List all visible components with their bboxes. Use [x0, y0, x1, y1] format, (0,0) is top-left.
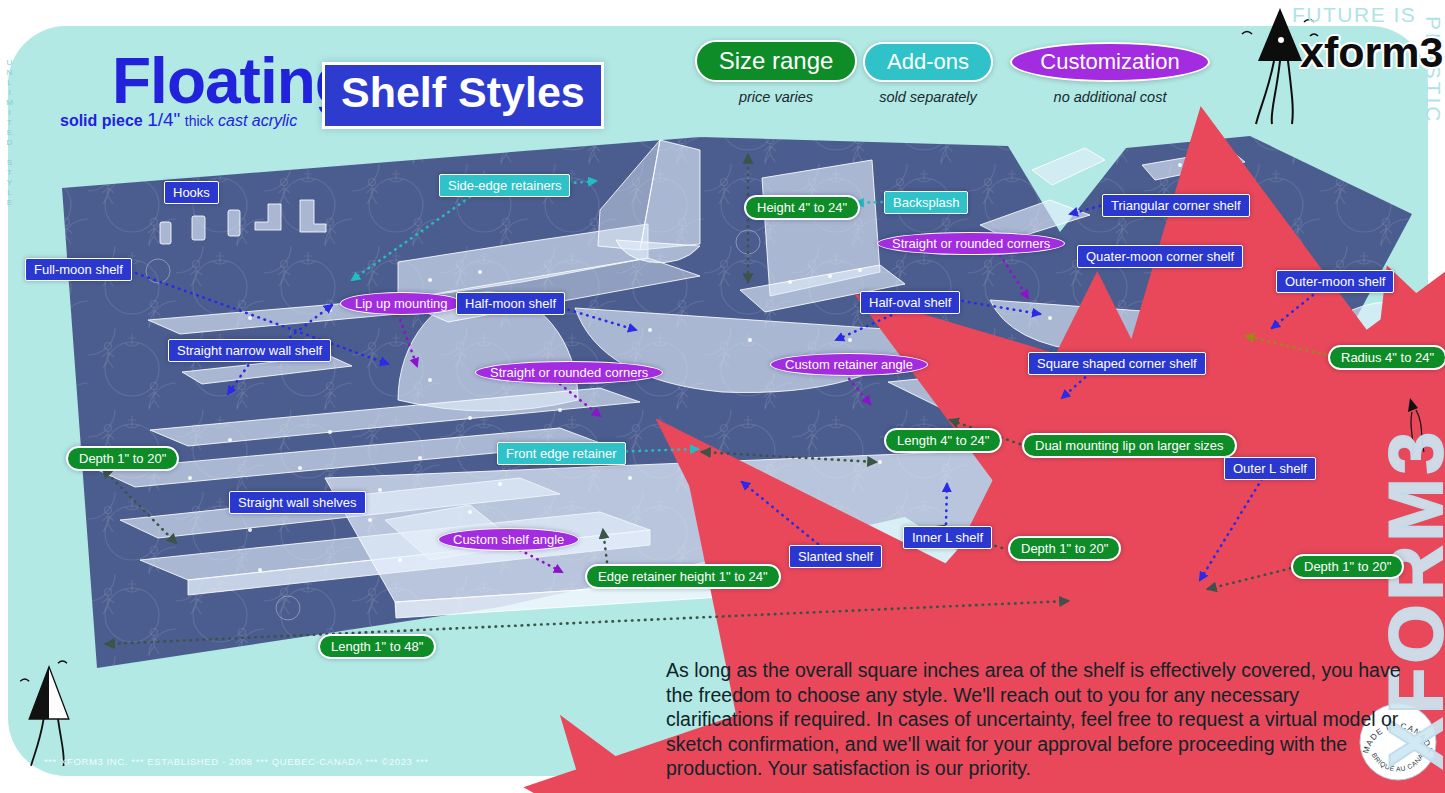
label-hooks: Hooks	[164, 181, 219, 204]
subtitle-material: cast acrylic	[218, 112, 297, 129]
label-side-edge-retainers: Side-edge retainers	[439, 174, 570, 197]
label-depth-right: Depth 1" to 20"	[1291, 554, 1404, 579]
label-half-oval-shelf: Half-oval shelf	[860, 291, 960, 314]
label-dual-mounting-lip: Dual mounting lip on larger sizes	[1022, 433, 1237, 458]
label-triangular-corner-shelf: Triangular corner shelf	[1102, 194, 1250, 217]
label-length-4-24: Length 4" to 24"	[884, 428, 1002, 453]
label-straight-or-rounded-corners-mid: Straight or rounded corners	[475, 361, 663, 384]
subtitle: solid piece 1/4" thick cast acrylic	[60, 109, 297, 131]
legend-size-range: Size range price varies	[700, 40, 852, 105]
subtitle-solid-piece: solid piece	[60, 112, 143, 129]
label-full-moon-shelf: Full-moon shelf	[25, 258, 132, 281]
xform3-logo: xform3	[1300, 28, 1443, 77]
label-edge-retainer-height: Edge retainer height 1" to 24"	[585, 564, 781, 589]
label-square-shaped-corner-shelf: Square shaped corner shelf	[1028, 352, 1206, 375]
customization-caption: no additional cost	[1054, 89, 1167, 105]
footer-fine-print: *** XFORM3 INC. *** ESTABLISHED - 2008 *…	[44, 756, 429, 767]
title-shelf-styles: Shelf Styles	[322, 62, 604, 129]
footer-paragraph: As long as the overall square inches are…	[666, 658, 1410, 781]
label-straight-narrow-wall-shelf: Straight narrow wall shelf	[168, 339, 331, 362]
label-height-range: Height 4" to 24"	[744, 195, 860, 220]
legend-customization: Customization no additional cost	[1014, 42, 1206, 105]
subtitle-thickness: 1/4"	[147, 109, 180, 130]
title-floating: Floating	[112, 44, 353, 118]
label-slanted-shelf: Slanted shelf	[789, 545, 882, 568]
label-half-moon-shelf: Half-moon shelf	[456, 292, 565, 315]
size-range-badge: Size range	[695, 40, 858, 82]
label-outer-moon-shelf: Outer-moon shelf	[1276, 270, 1394, 293]
label-front-edge-retainer: Front edge retainer	[497, 442, 626, 465]
subtitle-thick: thick	[185, 113, 214, 129]
label-depth-left: Depth 1" to 20"	[66, 446, 179, 471]
left-edge-text: UNLIMITED STYLE	[5, 58, 14, 208]
label-lip-up-mounting: Lip up mounting	[340, 292, 463, 315]
label-backsplash: Backsplash	[884, 191, 968, 214]
label-straight-or-rounded-corners-top: Straight or rounded corners	[877, 232, 1065, 255]
add-ons-caption: sold separately	[879, 89, 977, 105]
label-depth-mid: Depth 1" to 20"	[1008, 536, 1121, 561]
label-custom-shelf-angle: Custom shelf angle	[438, 528, 579, 551]
size-range-caption: price varies	[739, 89, 813, 105]
label-inner-l-shelf: Inner L shelf	[903, 526, 992, 549]
label-outer-l-shelf: Outer L shelf	[1224, 457, 1316, 480]
customization-badge: Customization	[1010, 42, 1209, 82]
add-ons-badge: Add-ons	[863, 42, 993, 82]
label-straight-wall-shelves: Straight wall shelves	[229, 491, 366, 514]
label-length-1-48: Length 1" to 48"	[318, 634, 436, 659]
label-radius-range: Radius 4" to 24"	[1328, 345, 1445, 370]
label-custom-retainer-angle: Custom retainer angle	[770, 353, 928, 376]
future-is-text: FUTURE IS	[1292, 3, 1416, 27]
label-quater-moon-corner-shelf: Quater-moon corner shelf	[1077, 245, 1243, 268]
legend-add-ons: Add-ons sold separately	[868, 42, 988, 105]
